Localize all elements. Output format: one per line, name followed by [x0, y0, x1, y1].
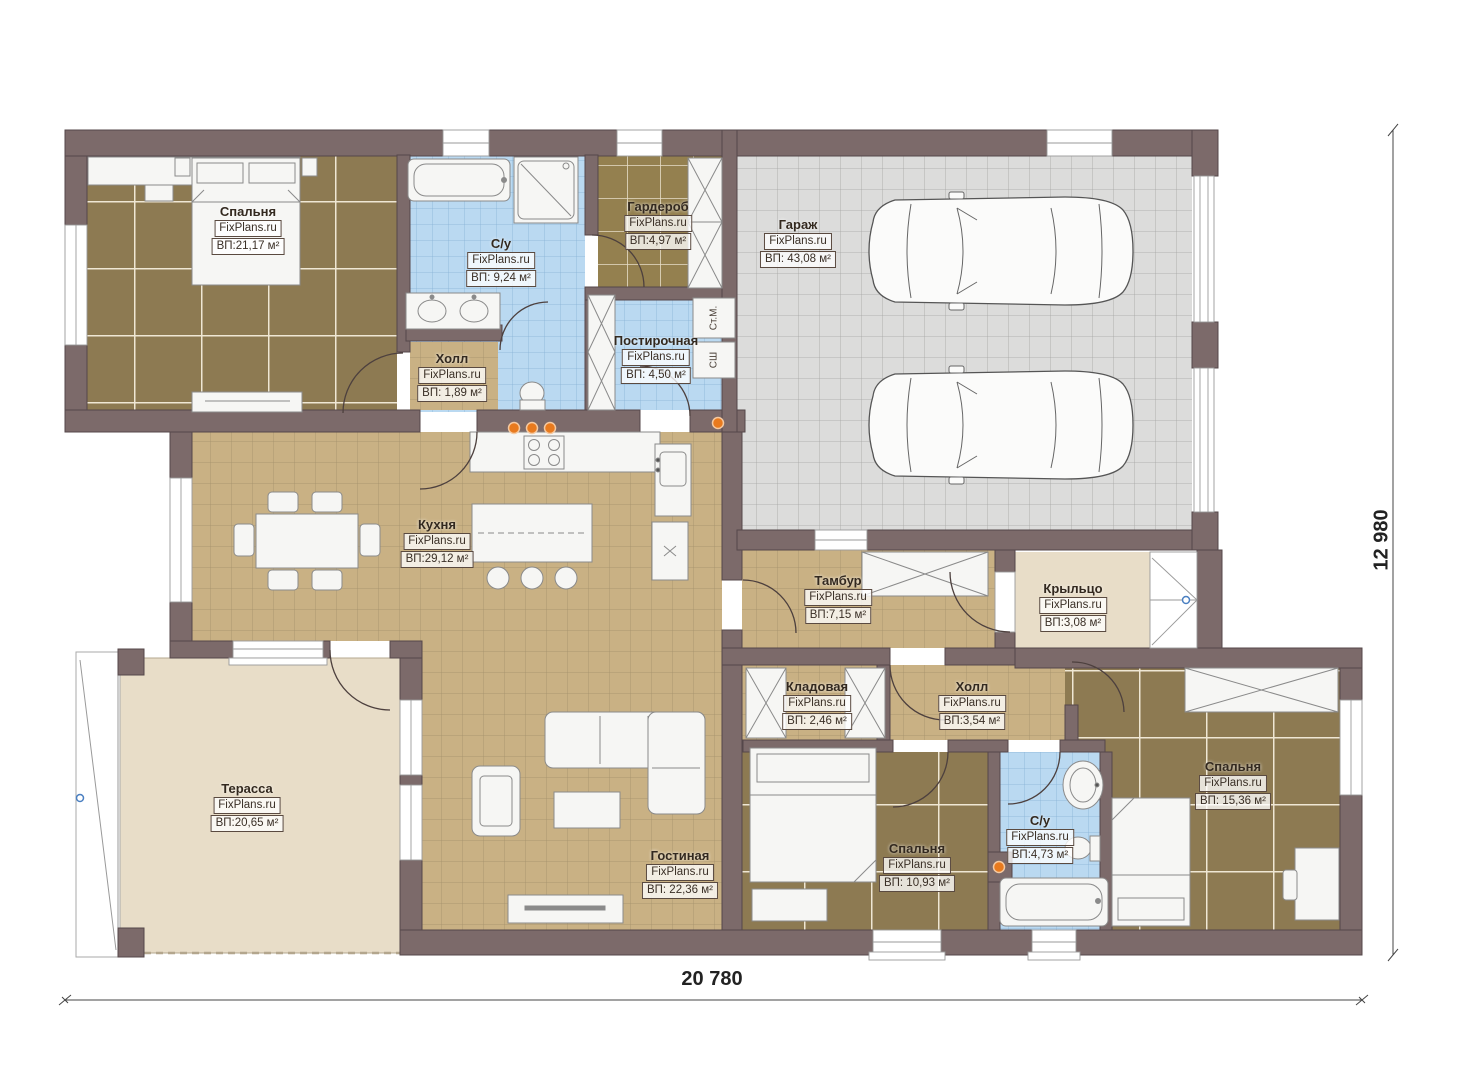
pillow [249, 163, 295, 183]
chair [1283, 870, 1297, 900]
chair [268, 492, 298, 512]
dimension-width: 20 780 [681, 968, 742, 991]
floor-plan-canvas: Спальня FixPlans.ru ВП:21,17 м² С/у FixP… [0, 0, 1474, 1080]
blue-marker [77, 795, 84, 802]
light-dot [509, 423, 520, 434]
chair [312, 570, 342, 590]
toilet [1065, 837, 1091, 859]
front-door-opening [995, 572, 1015, 632]
light-dot [545, 423, 556, 434]
garage-door-1 [1194, 176, 1214, 322]
chair [360, 524, 380, 556]
chair [312, 492, 342, 512]
bathtub [408, 159, 510, 201]
desk [1295, 848, 1339, 920]
stool [555, 567, 577, 589]
nightstand [302, 158, 317, 176]
stool [487, 567, 509, 589]
nightstand [175, 158, 190, 176]
chair [234, 524, 254, 556]
hall-2-floor [890, 665, 1065, 740]
light-dot [994, 862, 1005, 873]
sink [460, 300, 488, 322]
bathtub [1000, 878, 1108, 926]
light-dot [527, 423, 538, 434]
sofa-chaise [648, 712, 705, 814]
dryer-label: СШ [709, 352, 720, 368]
pillow [1118, 898, 1184, 920]
washer-label: Ст.М. [709, 306, 720, 331]
stool [521, 567, 543, 589]
dresser [192, 392, 302, 412]
terrace-floor [120, 658, 410, 953]
coffee-table [554, 792, 620, 828]
chair [268, 570, 298, 590]
car-1 [869, 192, 1133, 310]
kitchen-counter [470, 432, 660, 472]
floor-plan-drawing [0, 0, 1474, 1080]
hall-1-floor [410, 342, 498, 410]
light-dot [713, 418, 724, 429]
porch-floor [1015, 552, 1160, 648]
wardrobe-closets [688, 158, 722, 288]
sink [418, 300, 446, 322]
dimension-height: 12 980 [1371, 509, 1394, 570]
dresser [752, 889, 827, 921]
car-2 [869, 366, 1133, 484]
blue-marker [1183, 597, 1190, 604]
garage-door-2 [1194, 368, 1214, 512]
vestibule-closet [862, 552, 988, 596]
dining-table [256, 514, 358, 568]
pillow [757, 754, 869, 782]
pillow [197, 163, 243, 183]
